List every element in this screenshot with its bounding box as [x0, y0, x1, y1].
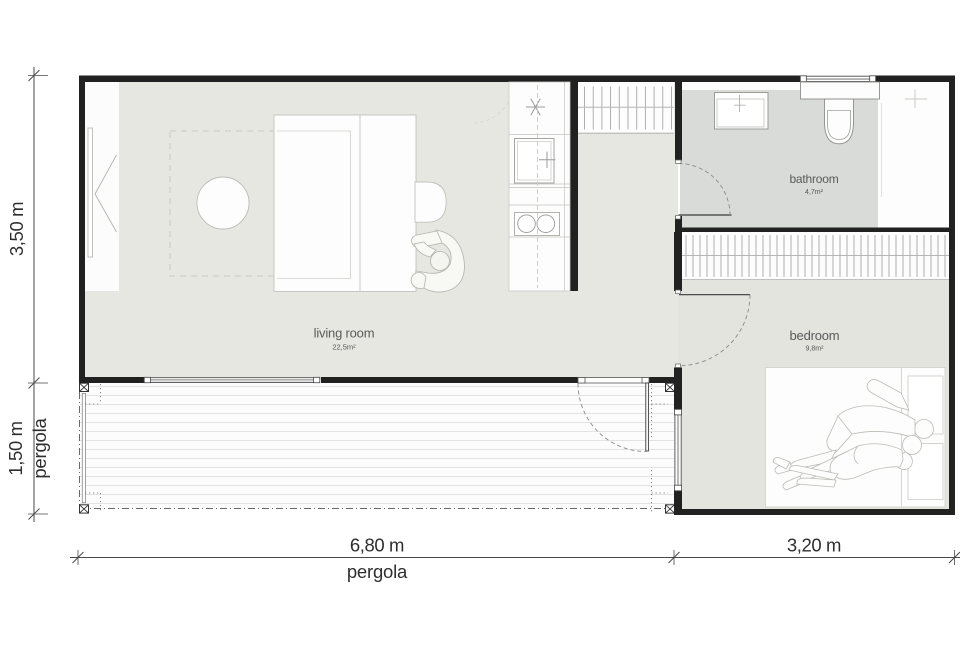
svg-text:1,50 m: 1,50 m: [5, 421, 26, 475]
svg-text:6,80 m: 6,80 m: [350, 535, 404, 556]
svg-text:pergola: pergola: [347, 561, 408, 582]
svg-text:living room: living room: [314, 326, 375, 341]
svg-text:bedroom: bedroom: [790, 328, 840, 343]
svg-text:pergola: pergola: [29, 417, 50, 478]
svg-text:9,8m²: 9,8m²: [806, 346, 825, 353]
svg-text:3,50 m: 3,50 m: [6, 202, 27, 256]
svg-text:bathroom: bathroom: [789, 172, 838, 186]
svg-text:22,5m²: 22,5m²: [332, 343, 356, 352]
svg-text:3,20 m: 3,20 m: [787, 535, 841, 556]
svg-text:4,7m²: 4,7m²: [805, 189, 824, 196]
